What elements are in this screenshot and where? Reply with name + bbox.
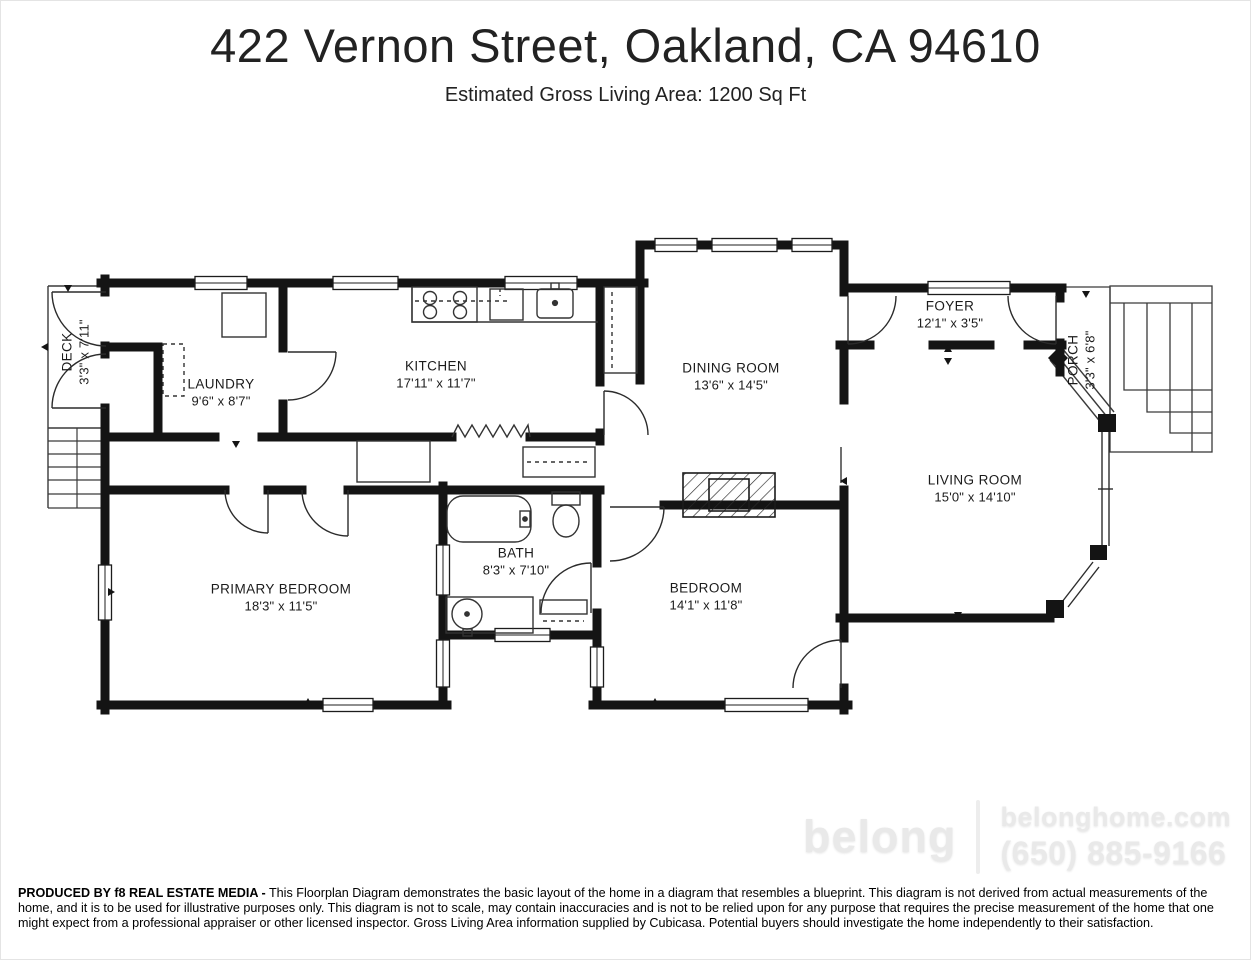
room-label-dining: DINING ROOM 13'6" x 14'5" bbox=[682, 361, 779, 394]
watermark-divider bbox=[976, 800, 980, 874]
fireplace-icon bbox=[683, 473, 775, 517]
room-label-kitchen: KITCHEN 17'11" x 11'7" bbox=[396, 359, 475, 392]
room-label-laundry: LAUNDRY 9'6" x 8'7" bbox=[187, 377, 254, 410]
room-label-bedroom: BEDROOM 14'1" x 11'8" bbox=[670, 581, 743, 614]
bay-window bbox=[1046, 432, 1113, 618]
kitchen-counter bbox=[412, 287, 598, 322]
radiator-zigzag bbox=[452, 425, 530, 437]
room-label-foyer: FOYER 12'1" x 3'5" bbox=[917, 299, 983, 332]
watermark-phone: (650) 885-9166 bbox=[1000, 835, 1231, 872]
hall-counter bbox=[523, 447, 595, 477]
disclaimer-lead: PRODUCED BY f8 REAL ESTATE MEDIA - bbox=[18, 886, 266, 900]
bathtub-icon bbox=[447, 496, 531, 542]
floorplan-page: 422 Vernon Street, Oakland, CA 94610 Est… bbox=[0, 0, 1251, 960]
belong-logo: belong bbox=[803, 811, 956, 863]
room-label-living: LIVING ROOM 15'0" x 14'10" bbox=[928, 473, 1022, 506]
brand-watermark: belong belonghome.com (650) 885-9166 bbox=[803, 800, 1231, 874]
room-label-primary: PRIMARY BEDROOM 18'3" x 11'5" bbox=[211, 582, 352, 615]
deck-stairs bbox=[48, 428, 106, 508]
room-label-bath: BATH 8'3" x 7'10" bbox=[483, 546, 549, 579]
dishwasher-icon bbox=[490, 289, 523, 320]
toilet-icon bbox=[552, 492, 580, 537]
room-label-porch: PORCH 3'3" x 6'8" bbox=[1066, 330, 1099, 389]
disclaimer-text: PRODUCED BY f8 REAL ESTATE MEDIA - This … bbox=[18, 886, 1235, 931]
dryer-dashed-box bbox=[163, 344, 184, 396]
stove-icon bbox=[412, 287, 477, 322]
room-label-deck: DECK 3'3" x 7'11" bbox=[60, 319, 93, 385]
bath-cabinet bbox=[540, 600, 587, 621]
window-symbols bbox=[99, 239, 1011, 712]
hall-closet bbox=[357, 441, 430, 482]
dining-cabinet bbox=[604, 287, 637, 373]
washer-icon bbox=[222, 293, 266, 337]
watermark-website: belonghome.com bbox=[1000, 802, 1231, 833]
